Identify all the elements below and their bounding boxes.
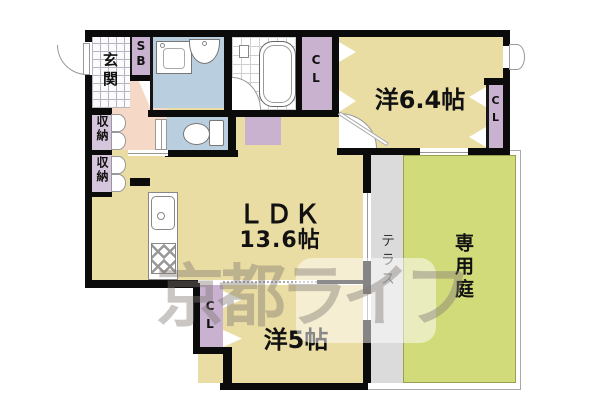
washing-machine-knob [160,43,165,48]
floor-plan: 玄関 SB 収納 収納 ＬＤＫ 13.6帖 洋6.4帖 洋5帖 CL CL CL… [0,0,600,400]
wall [130,75,150,81]
washing-machine-drum [163,48,185,69]
western-6-4-label: 洋6.4帖 [337,80,503,115]
toilet-tank [209,120,224,146]
wall [363,153,371,193]
toilet-bowl [183,123,210,145]
storage-1-label: 収納 [94,115,111,143]
toilet-sliding-door [155,119,167,150]
wall [85,108,112,115]
wall [193,347,223,354]
storage-2-label: 収納 [94,156,111,184]
closet-west-label: CL [309,53,323,89]
bathtub-rim [263,45,292,103]
wall [224,37,232,110]
wall [220,383,368,390]
wall [130,178,150,186]
storage-door [111,156,126,174]
watermark: 京都ライフ [156,264,466,332]
kitchen-faucet [157,212,165,220]
shower-mixer [239,45,249,58]
closet-hall [245,117,281,145]
storage-door [111,174,126,192]
wall [85,150,112,155]
wall [148,110,338,117]
wall [130,37,132,75]
wall [85,192,112,197]
wall [150,37,153,110]
storage-door [111,114,126,132]
window [420,148,468,155]
wall [165,150,238,157]
wall [296,37,302,110]
shoe-box-label: SB [134,39,148,69]
washbasin-tap [202,41,207,46]
ldk-area-label: 13.6帖 [195,222,365,254]
wall [85,30,510,37]
entrance-door-leaf [83,43,90,75]
closet-east-label: CL [489,94,502,128]
genkan-label: 玄関 [100,52,121,90]
wall [228,117,236,150]
storage-door [111,132,126,150]
side-door-leaf [509,44,525,70]
hall-ldk-opening [128,150,168,156]
